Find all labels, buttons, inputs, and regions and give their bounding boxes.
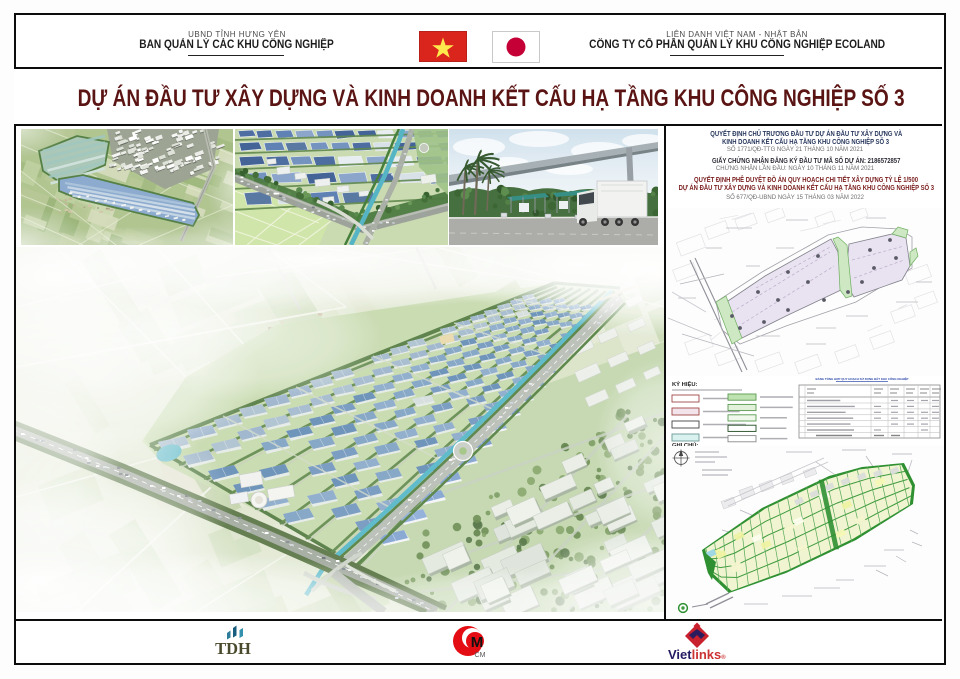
svg-text:BẢNG TỔNG HỢP QUY HOẠCH SỬ DỤN: BẢNG TỔNG HỢP QUY HOẠCH SỬ DỤNG ĐẤT KHU … [816, 376, 909, 381]
svg-text:CM: CM [475, 652, 486, 659]
svg-text:KÝ HIỆU:: KÝ HIỆU: [672, 380, 698, 388]
svg-text:TDH: TDH [215, 639, 251, 658]
svg-text:M: M [471, 634, 484, 651]
svg-text:Vietlinks®: Vietlinks® [668, 647, 726, 662]
